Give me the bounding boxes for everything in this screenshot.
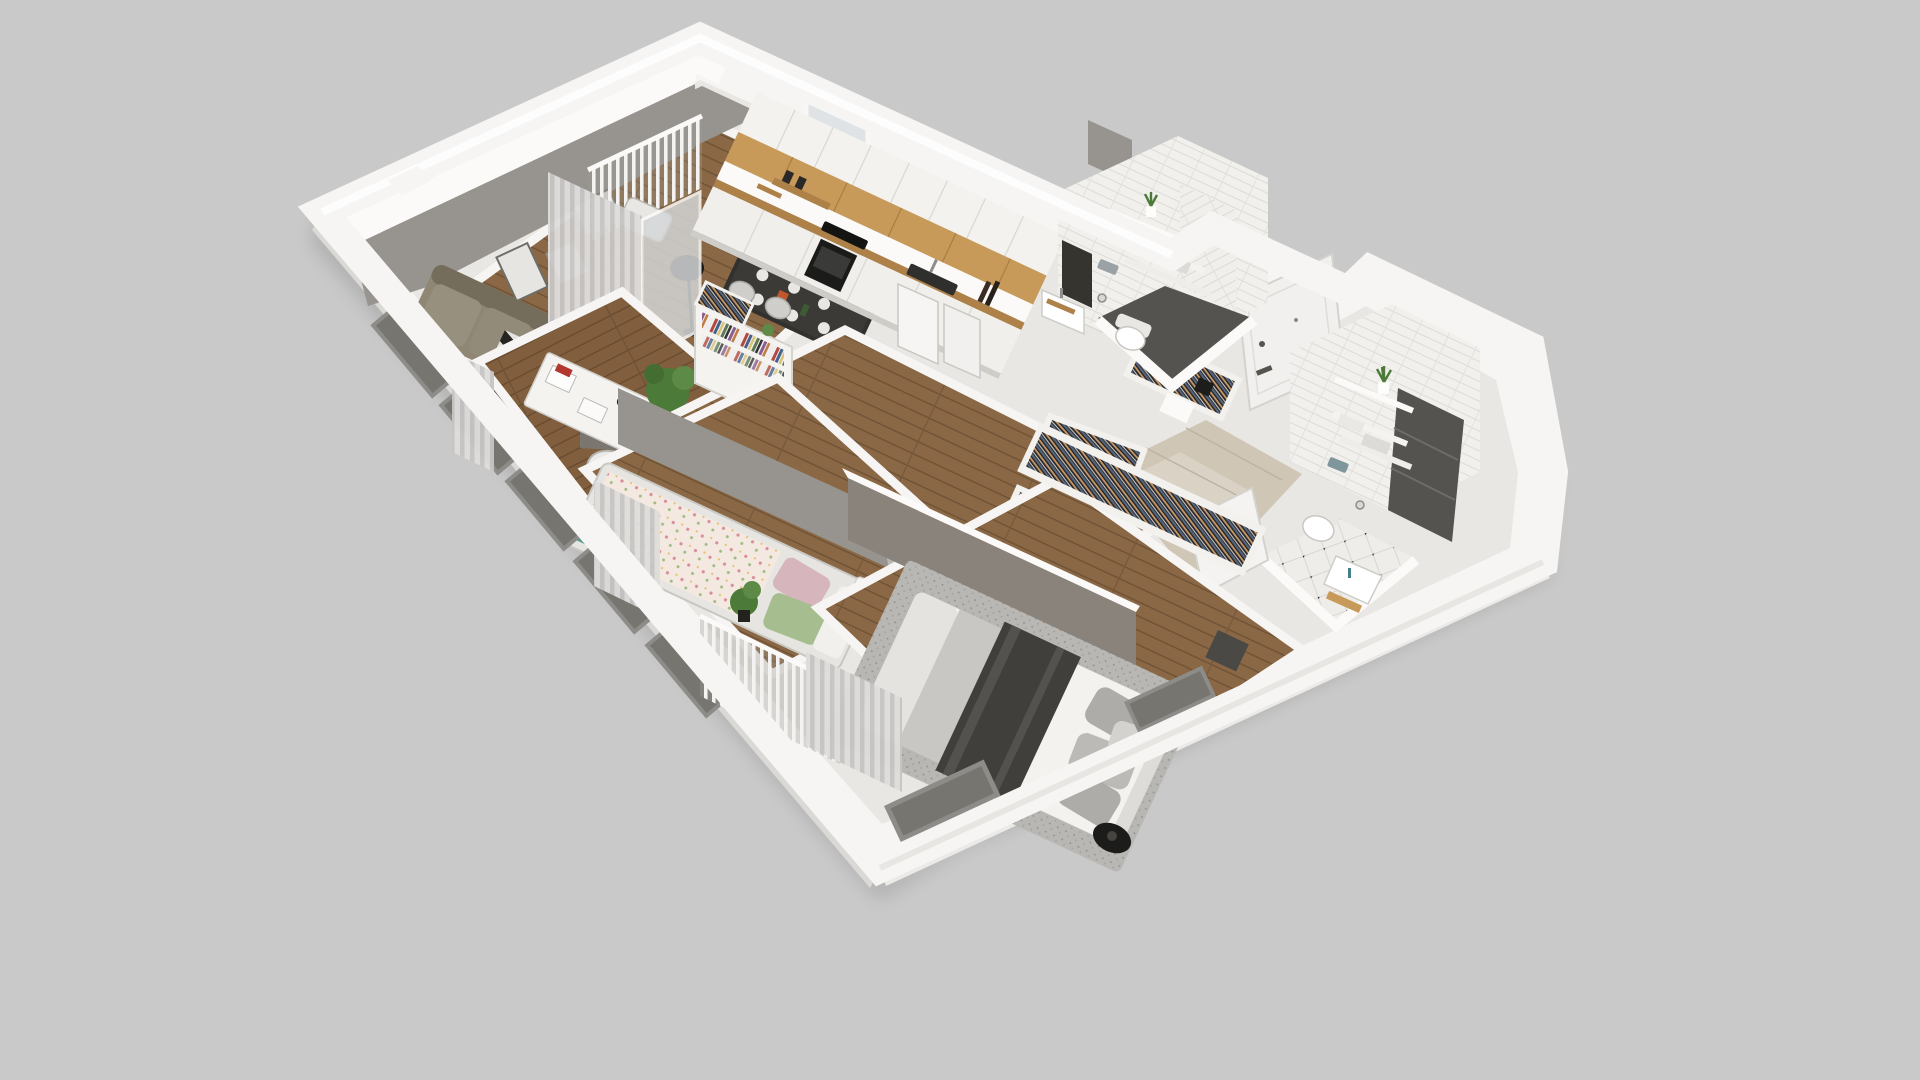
wc-paper-holder — [1098, 294, 1106, 302]
door-lock — [1259, 341, 1265, 347]
floorplan-stage — [0, 0, 1920, 1080]
bath-paper-holder — [1356, 501, 1364, 509]
floorplan-render — [0, 0, 1920, 1080]
